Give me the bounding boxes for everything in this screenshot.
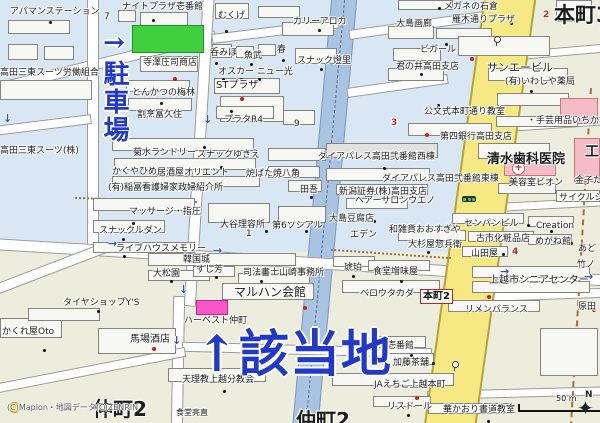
- map-label: 炉ばた焼八角: [246, 170, 300, 179]
- map-label: 大島豆腐店: [329, 215, 374, 224]
- poi-dot: [225, 30, 228, 33]
- map-label: 美容室ビオン: [509, 179, 563, 188]
- poi-dot: [410, 354, 413, 357]
- building: [44, 46, 74, 60]
- traffic-signal-icon: [462, 196, 476, 202]
- map-label: 大谷理容所: [220, 221, 265, 230]
- map-label: かくれ屋Oto: [2, 328, 54, 337]
- poi-dot: [318, 29, 321, 32]
- map-label: アパマンステーション: [10, 8, 99, 17]
- poi-dot: [97, 310, 100, 313]
- poi-dot: [432, 362, 435, 365]
- map-label: 呑みほ: [210, 49, 237, 58]
- poi-dot: [400, 280, 403, 283]
- map-label: 仲町2: [296, 410, 350, 423]
- map-label: オスカー ニュー光: [218, 68, 293, 77]
- map-label: 本町3: [554, 4, 600, 26]
- poi-dot: [420, 73, 423, 76]
- map-label: 居酒屋オリエント: [157, 169, 229, 178]
- map-label: すし芳: [196, 266, 223, 275]
- map-label: ダイアパレス高田弐番館東棟: [382, 175, 499, 184]
- oneway-arrow-icon: ↓: [203, 114, 212, 125]
- map-label: 寺澤庄司商店: [143, 59, 197, 68]
- highlighted-building: [196, 300, 228, 315]
- poi-dot: [122, 238, 125, 241]
- building: [540, 328, 598, 376]
- oneway-arrow-icon: ↓: [172, 335, 181, 346]
- map-label: エデン: [350, 231, 377, 240]
- poi-dot: [215, 276, 218, 279]
- map-label: 加藤茶舗: [393, 359, 429, 368]
- map-label: 3: [391, 119, 397, 128]
- map-label: STプラザ: [216, 81, 258, 92]
- poi-dot: [427, 251, 430, 254]
- map-label: リメンバランス: [465, 306, 528, 315]
- map-label: 君の井高田支店: [396, 63, 459, 72]
- map-label: 金子た: [575, 177, 600, 186]
- map-label: 司法書士山崎事務所: [243, 269, 324, 278]
- map-label: 竹ノ: [577, 261, 595, 270]
- map-label: 1: [246, 230, 252, 239]
- poi-dot: [407, 414, 410, 417]
- map-label: (有)稲冨看護婦家政婦紹介所: [108, 184, 223, 193]
- poi-dot: [282, 59, 285, 62]
- map-label: 大松園: [153, 270, 180, 279]
- map-label: リスドール: [387, 403, 432, 412]
- scale-label: 50 m: [556, 394, 577, 403]
- signal-pole-icon: [451, 361, 458, 371]
- map-label: (有)いわしや薬局: [505, 78, 575, 87]
- poi-dot-red: [173, 77, 177, 81]
- map-label: あど: [578, 245, 596, 254]
- map-label: ヘアーサロンウエノ: [355, 197, 435, 206]
- map-label: 食堂亮直: [176, 409, 208, 417]
- map-label: 華かおり書道教室: [443, 406, 515, 415]
- building: [140, 12, 188, 26]
- map-label: ライブハウスメモリー: [116, 245, 206, 254]
- map-label: カリーアロカ: [293, 18, 347, 27]
- map-label: 2: [543, 11, 549, 20]
- poi-dot: [223, 390, 226, 393]
- poi-dot-red: [240, 97, 244, 101]
- map-label: スナックルダン: [99, 227, 162, 236]
- building: [132, 25, 204, 53]
- building: [28, 308, 100, 321]
- street: [171, 296, 185, 423]
- poi-dot: [260, 280, 263, 283]
- map-label: サンエービル: [487, 62, 553, 74]
- signal-pole-icon: [493, 36, 500, 46]
- town-label-honcho2: 本町2: [420, 289, 453, 304]
- map-label: ダイアパレス高田弐番館西棟: [318, 153, 435, 162]
- poi-dot: [170, 280, 173, 283]
- poi-dot: [132, 222, 135, 225]
- oneway-arrow-icon: ↓: [3, 113, 12, 124]
- poi-dot-red: [303, 306, 307, 310]
- map-label: とんかつの梅林: [132, 89, 195, 98]
- oneway-arrow-icon: ↓: [179, 284, 188, 295]
- map-label: ナイトプラザ壱番館: [122, 3, 203, 12]
- map-label: プラタR4: [224, 116, 263, 125]
- map-label: むくげ: [218, 12, 245, 21]
- map-label: 雁木通りプラザ: [452, 16, 515, 25]
- map-label: 魚武: [244, 52, 262, 61]
- building: [497, 93, 569, 106]
- poi-dot: [43, 349, 46, 352]
- map-label: スナック燈里: [297, 57, 351, 66]
- map-label: ビガール: [420, 46, 456, 55]
- map-label: 原田: [578, 303, 596, 312]
- map-label: センパンビル: [464, 220, 518, 229]
- building: [0, 80, 92, 100]
- map-label: メガネの石倉: [444, 3, 498, 12]
- map-label: 割烹冨久住: [137, 111, 182, 120]
- poi-dot: [215, 62, 218, 65]
- map-label: 和雑貨おおすぎや: [389, 226, 461, 235]
- compass-north-label: N: [585, 390, 593, 400]
- map-label: 馬場酒店: [130, 335, 170, 346]
- map-label: 春: [277, 46, 286, 55]
- poi-dot-red: [487, 295, 491, 299]
- map-label: マルハン会館: [234, 286, 306, 299]
- copyright-text: (C)Mapion・地図データ(C)ZENRIN: [7, 402, 138, 413]
- map-label: 古市化粧品店: [476, 235, 530, 244]
- parking-annotation: →駐車場: [96, 28, 133, 144]
- map-label: 菊水ランドリー: [133, 149, 196, 158]
- poi-dot: [438, 7, 441, 10]
- poi-dot: [502, 253, 505, 256]
- poi-dot-red: [425, 133, 429, 137]
- poi-dot: [320, 68, 323, 71]
- map-label: ベロウタカダ: [360, 290, 414, 299]
- poi-dot: [203, 146, 206, 149]
- map-label: 食堂増味屋: [373, 268, 418, 277]
- map-label: 工: [585, 145, 599, 160]
- map-label: 第四銀行高田支店: [440, 133, 512, 142]
- poi-dot: [383, 167, 386, 170]
- map-label: サイクルショップ: [559, 194, 600, 203]
- poi-dot: [49, 21, 52, 24]
- poi-dot-red: [470, 57, 474, 61]
- poi-dot-red: [152, 347, 156, 351]
- map-label: かくやひめ: [112, 168, 157, 177]
- poi-dot: [530, 90, 533, 93]
- oneway-arrow-icon: →: [213, 245, 222, 256]
- target-site-annotation: ↑該当地: [196, 314, 392, 386]
- map-label: 大島画廊: [396, 20, 432, 29]
- poi-dot: [160, 102, 163, 105]
- poi-dot: [123, 255, 126, 258]
- map-label: タイヤショップY'S: [63, 299, 139, 308]
- map-label: 上越市シニアセンター: [489, 276, 589, 287]
- map-label: Creation: [536, 222, 574, 231]
- map-canvas[interactable]: ↓↓→→↓↓→→↓+ アパマンステーションナイトプラザ壱番館7むくげカリーアロカ…: [0, 0, 600, 423]
- poi-dot-red: [415, 396, 419, 400]
- map-label: 山田屋: [471, 250, 498, 259]
- poi-dot: [250, 63, 253, 66]
- map-label: 大杉屋惣兵衛: [408, 241, 462, 250]
- map-label: 高田三東スーツ(株): [0, 147, 79, 156]
- map-label: 高田三東スーツ労働組合: [0, 69, 99, 78]
- map-label: マッサージ・指圧: [129, 208, 201, 217]
- poi-dot: [265, 230, 268, 233]
- poi-dot: [310, 196, 313, 199]
- map-label: 9: [294, 120, 300, 129]
- map-label: 琥珀: [344, 264, 362, 273]
- building: [458, 36, 550, 56]
- map-label: 田吾: [300, 186, 318, 195]
- map-label: 7: [104, 13, 110, 22]
- building: [8, 44, 38, 60]
- poi-dot: [152, 19, 155, 22]
- map-label: めがね館: [535, 238, 571, 247]
- poi-dot: [352, 275, 355, 278]
- poi-dot: [230, 110, 233, 113]
- map-label: 清水歯科医院: [487, 153, 565, 167]
- map-label: ・手芸用品いちかわ: [527, 117, 600, 126]
- building: [8, 20, 70, 34]
- map-label: 公文式本町通り教室: [424, 108, 505, 117]
- compass-icon: ✦: [577, 398, 594, 418]
- map-label: 第6ソシアル: [272, 222, 323, 231]
- poi-dot: [527, 224, 530, 227]
- map-label: スナックゆきえ: [197, 151, 260, 160]
- map-label: 4: [512, 248, 518, 257]
